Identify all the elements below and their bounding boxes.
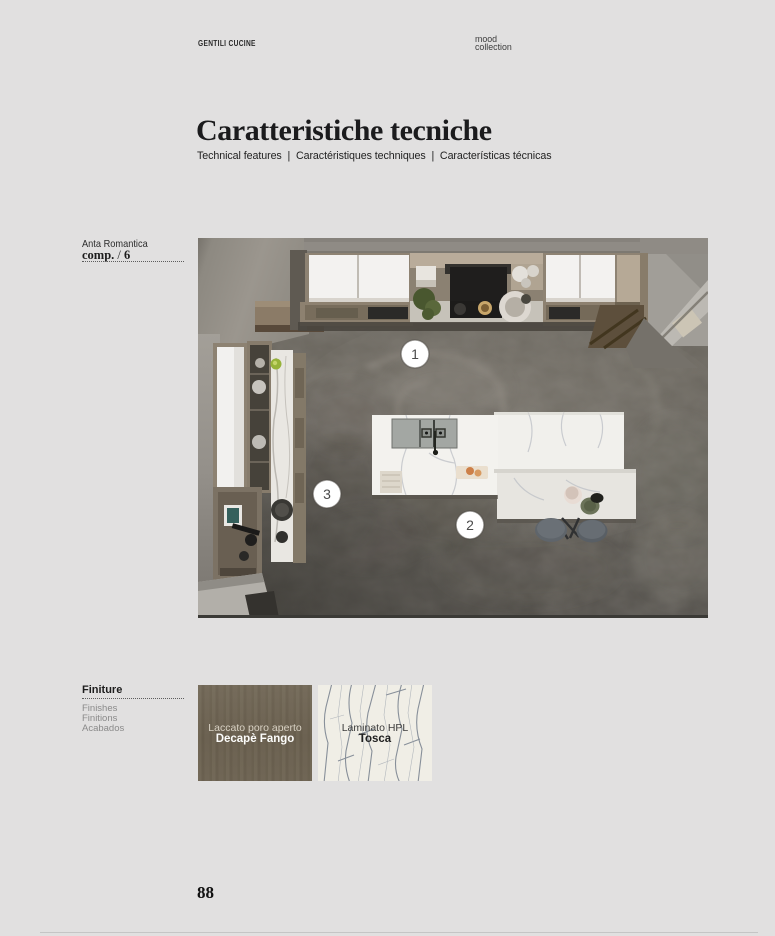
svg-text:1: 1 <box>411 346 419 362</box>
svg-text:2: 2 <box>466 517 474 533</box>
svg-text:3: 3 <box>323 486 331 502</box>
